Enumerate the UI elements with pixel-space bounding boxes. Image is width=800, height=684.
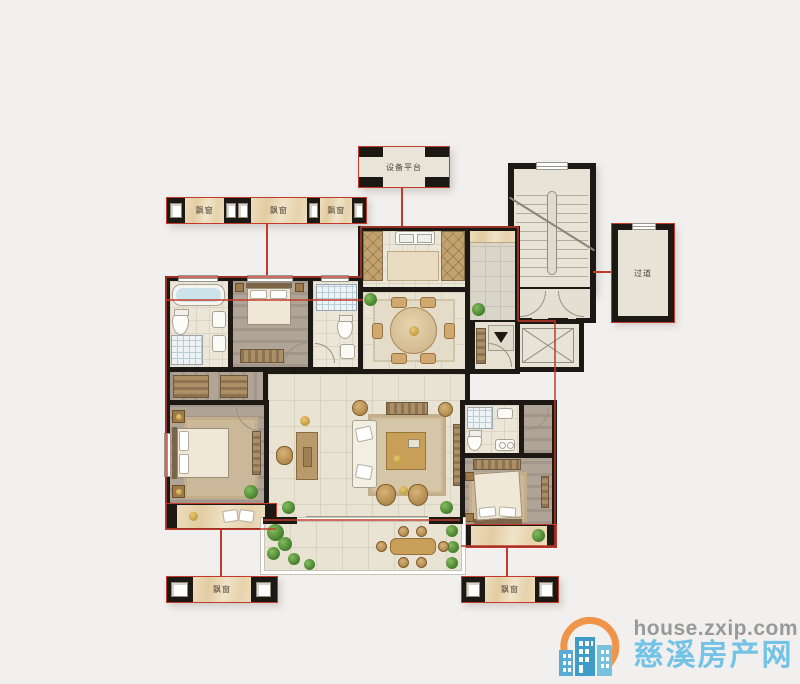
- sofa: [352, 420, 377, 488]
- tv-cabinet: [252, 431, 261, 475]
- sofa-pillow: [355, 464, 373, 481]
- sink: [497, 408, 513, 419]
- dining-chair: [420, 297, 436, 308]
- dining-chair: [391, 297, 407, 308]
- cushion: [238, 509, 255, 523]
- desk-chair: [276, 446, 293, 465]
- bed: [474, 472, 522, 524]
- armchair: [408, 484, 428, 506]
- bed: [246, 283, 292, 325]
- table-tray: [408, 439, 420, 448]
- desk-blotter: [303, 447, 312, 467]
- toilet: [337, 318, 353, 339]
- washer-drum-icon: [499, 442, 506, 449]
- balcony: [261, 518, 465, 574]
- shower-stall: [316, 284, 357, 311]
- corridor-room: 过道: [612, 224, 674, 322]
- bed-pillow: [179, 431, 189, 451]
- wall-pier: [224, 198, 251, 223]
- bedroom3-bay-window: [460, 524, 557, 548]
- dining-chair: [444, 323, 455, 339]
- bathroom-window: [178, 275, 218, 282]
- washer: [495, 439, 515, 451]
- bathroom-window: [321, 275, 349, 282]
- plant-icon: [267, 547, 280, 560]
- sink: [340, 344, 355, 359]
- corridor-window: [632, 223, 656, 230]
- bay-window-label: 飘窗: [185, 198, 225, 223]
- plant-icon: [304, 559, 315, 570]
- bay-leader-line: [220, 530, 222, 577]
- sink-basin: [399, 234, 414, 243]
- elevator-x-icon: [522, 328, 574, 363]
- dining-room: [358, 287, 470, 374]
- dining-chair: [372, 323, 383, 339]
- bathroom-3: [460, 400, 524, 458]
- window-pane-icon: [226, 203, 236, 218]
- window-pane-icon: [309, 203, 318, 218]
- bedroom-window: [164, 433, 171, 477]
- bathtub-basin: [176, 288, 221, 302]
- stair-rail: [547, 191, 557, 275]
- dining-chair: [391, 353, 407, 364]
- toilet: [172, 312, 189, 335]
- door-swing-arc: [284, 343, 306, 365]
- foyer-cabinet: [470, 231, 515, 243]
- bathtub: [172, 284, 225, 306]
- wall-corner: [359, 177, 383, 187]
- plant-icon: [446, 557, 458, 569]
- bay-window-strip-bottom-left: 飘窗: [166, 576, 278, 603]
- bed-pillow: [479, 506, 497, 518]
- plant-icon: [532, 529, 545, 542]
- wardrobe: [240, 349, 284, 363]
- wardrobe: [173, 375, 209, 398]
- door-swing-arc: [315, 343, 335, 363]
- nightstand: [295, 283, 304, 292]
- bedroom-2: [228, 276, 313, 372]
- toilet: [467, 433, 482, 451]
- watermark-site-name: 慈溪房产网: [633, 640, 798, 672]
- wall-corner: [425, 177, 449, 187]
- door-swing-arc: [558, 291, 584, 317]
- window-pane-icon: [238, 203, 248, 218]
- coffee-table: [386, 432, 426, 470]
- plant-icon: [446, 525, 458, 537]
- bay-window-label: 飘窗: [320, 198, 352, 223]
- bay-window-label: 飘窗: [193, 577, 252, 602]
- side-table: [399, 486, 408, 495]
- sink: [212, 311, 226, 328]
- bay-leader-line: [506, 548, 508, 577]
- shower-stall: [171, 335, 203, 365]
- bed-pillow: [179, 454, 189, 474]
- wardrobe: [473, 459, 521, 470]
- kitchen-island: [387, 251, 439, 281]
- bed: [172, 425, 230, 481]
- patio-stool: [416, 526, 427, 537]
- plant-icon: [278, 537, 292, 551]
- armchair: [376, 484, 396, 506]
- kitchen: [358, 226, 470, 292]
- patio-stool: [398, 526, 409, 537]
- bedroom-window: [247, 275, 293, 282]
- living-room: [263, 369, 470, 522]
- kitchen-counter: [363, 231, 383, 281]
- plant-icon: [364, 293, 377, 306]
- sofa-pillow: [355, 425, 374, 442]
- wall-pier: [167, 577, 193, 602]
- window-pane-icon: [539, 582, 553, 597]
- cushion: [222, 509, 239, 523]
- watermark-text: house.zxip.com 慈溪房产网: [633, 618, 798, 672]
- entry-cabinet: [476, 328, 486, 364]
- teddy-icon: [189, 512, 198, 521]
- window-pane-icon: [354, 203, 363, 218]
- patio-stool: [416, 557, 427, 568]
- sink: [212, 335, 226, 352]
- bathroom-1: [165, 276, 233, 372]
- foyer: [465, 226, 520, 325]
- patio-stool: [438, 541, 449, 552]
- dining-chair: [420, 353, 436, 364]
- bay-window-strip-bottom-right: 飘窗: [461, 576, 559, 603]
- floor-lamp-icon: [300, 416, 310, 426]
- wall-pier: [167, 198, 185, 223]
- plant-icon: [472, 303, 485, 316]
- dresser: [541, 476, 549, 508]
- master-bedroom: [165, 400, 269, 508]
- plant-icon: [440, 501, 453, 514]
- nightstand: [465, 513, 474, 522]
- patio-stool: [376, 541, 387, 552]
- wall-pier: [307, 198, 321, 223]
- bay-window-label: 飘窗: [251, 198, 306, 223]
- wall-pier: [352, 198, 366, 223]
- bay-window-label: 飘窗: [485, 577, 536, 602]
- wall-corner: [359, 147, 383, 157]
- bedroom-corridor: [519, 400, 557, 458]
- corridor-leader-line: [593, 271, 612, 273]
- lamp-icon: [176, 414, 182, 420]
- wall-pier: [462, 577, 485, 602]
- floorplan-canvas: 飘窗 飘窗 飘窗 设备平台 过道: [0, 0, 800, 684]
- door-swing-arc: [520, 291, 546, 317]
- table-centerpiece: [409, 326, 419, 336]
- door-swing-arc: [527, 408, 549, 430]
- wardrobe: [220, 375, 248, 398]
- wall-corner: [425, 147, 449, 157]
- wall-stub: [429, 517, 463, 524]
- pouf-chair: [438, 402, 453, 417]
- bathroom-2: [308, 276, 365, 372]
- bed-pillow: [250, 290, 267, 299]
- platform-leader-line: [401, 188, 403, 228]
- wall-pier: [251, 577, 277, 602]
- plant-icon: [244, 485, 258, 499]
- bay-sill: [471, 526, 547, 546]
- watermark: house.zxip.com 慈溪房产网: [553, 610, 798, 680]
- window-pane-icon: [256, 582, 271, 597]
- plant-icon: [288, 553, 300, 565]
- washer-drum-icon: [507, 442, 514, 449]
- pouf-chair: [352, 400, 368, 416]
- table-decor: [393, 455, 402, 464]
- entry-vestibule: [470, 322, 520, 374]
- window-pane-icon: [466, 582, 480, 597]
- nightstand: [235, 283, 244, 292]
- stair-window: [536, 162, 568, 170]
- kitchen-counter: [441, 231, 465, 281]
- bay-window-strip-top: 飘窗 飘窗 飘窗: [166, 197, 367, 224]
- bed-pillow: [499, 506, 517, 517]
- window-pane-icon: [171, 582, 188, 597]
- dining-table: [390, 307, 437, 354]
- bedroom-3: [460, 453, 557, 529]
- bed-pillow: [270, 290, 287, 299]
- bay-sill: [177, 505, 265, 528]
- watermark-url: house.zxip.com: [633, 618, 798, 640]
- wall-pier: [535, 577, 558, 602]
- staircase: [508, 163, 596, 293]
- plant-icon: [282, 501, 295, 514]
- corridor-label: 过道: [618, 230, 668, 316]
- site-logo-icon: [553, 610, 629, 680]
- elevator: [512, 319, 584, 372]
- patio-table: [390, 538, 436, 555]
- nightstand: [172, 485, 185, 498]
- nightstand: [172, 410, 185, 423]
- sink-basin: [417, 234, 432, 243]
- shower-stall: [467, 407, 493, 429]
- desk: [296, 432, 318, 480]
- wall-stub: [263, 517, 297, 524]
- bay-leader-line: [266, 224, 268, 277]
- kitchen-sink: [395, 231, 435, 245]
- console-table: [386, 402, 428, 415]
- entry-door-icon: [494, 332, 508, 343]
- lamp-icon: [176, 489, 182, 495]
- window-pane-icon: [170, 203, 182, 218]
- elevator-lobby: [508, 289, 596, 323]
- equipment-platform: 设备平台: [358, 146, 450, 188]
- patio-stool: [398, 557, 409, 568]
